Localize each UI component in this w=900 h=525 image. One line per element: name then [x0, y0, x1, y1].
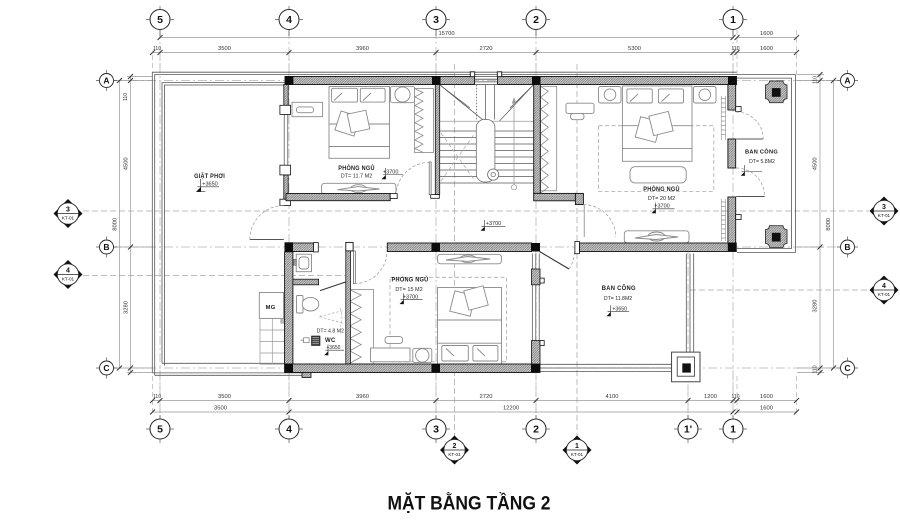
svg-text:1: 1: [730, 424, 736, 436]
svg-text:5: 5: [157, 424, 163, 436]
svg-text:DT= 20 M2: DT= 20 M2: [648, 196, 675, 202]
svg-text:4100: 4100: [606, 394, 619, 400]
svg-text:C: C: [103, 363, 109, 373]
svg-text:3: 3: [433, 424, 439, 436]
svg-text:2: 2: [453, 443, 457, 450]
svg-text:KT-01: KT-01: [878, 292, 891, 297]
svg-text:4: 4: [882, 283, 886, 290]
svg-text:4: 4: [286, 14, 292, 26]
svg-text:1600: 1600: [760, 394, 773, 400]
svg-text:PHÒNG NGỦ: PHÒNG NGỦ: [338, 163, 375, 172]
svg-text:BAN CÔNG: BAN CÔNG: [602, 284, 636, 292]
svg-text:110: 110: [732, 46, 740, 52]
svg-text:3: 3: [66, 207, 70, 214]
svg-text:DT= 4.8 M2: DT= 4.8 M2: [317, 329, 344, 335]
svg-text:2: 2: [533, 14, 539, 26]
svg-text:MẶT BẰNG TẦNG 2: MẶT BẰNG TẦNG 2: [388, 491, 551, 515]
svg-text:3500: 3500: [214, 406, 227, 412]
svg-text:DT= 11.7 M2: DT= 11.7 M2: [341, 174, 373, 180]
svg-text:110: 110: [153, 46, 161, 52]
svg-text:15700: 15700: [438, 31, 454, 37]
svg-text:B: B: [103, 242, 109, 252]
svg-text:110: 110: [813, 365, 819, 373]
svg-text:4: 4: [286, 424, 292, 436]
svg-text:3960: 3960: [356, 394, 369, 400]
svg-text:1200: 1200: [704, 394, 717, 400]
svg-text:DT= 11.8M2: DT= 11.8M2: [604, 296, 632, 302]
svg-text:8000: 8000: [826, 218, 832, 231]
svg-text:4: 4: [66, 268, 70, 275]
svg-text:1: 1: [730, 14, 736, 26]
svg-text:2720: 2720: [480, 46, 493, 52]
svg-text:KT-01: KT-01: [62, 216, 75, 221]
svg-text:8000: 8000: [113, 218, 119, 231]
svg-text:1: 1: [575, 443, 579, 450]
svg-text:DT= 15 M2: DT= 15 M2: [395, 287, 422, 293]
svg-text:+3700: +3700: [486, 221, 501, 227]
svg-text:DT= 5.8M2: DT= 5.8M2: [749, 159, 775, 165]
svg-text:1600: 1600: [760, 31, 773, 37]
svg-text:B: B: [844, 242, 850, 252]
svg-text:2: 2: [533, 424, 539, 436]
svg-text:110: 110: [732, 394, 740, 400]
svg-text:110: 110: [153, 394, 161, 400]
svg-text:12200: 12200: [503, 406, 519, 412]
svg-text:1600: 1600: [760, 406, 773, 412]
svg-text:A: A: [103, 76, 109, 86]
svg-text:4500: 4500: [124, 157, 130, 170]
svg-text:A: A: [844, 76, 850, 86]
svg-text:KT-01: KT-01: [571, 452, 584, 457]
svg-text:110: 110: [123, 93, 129, 101]
svg-text:PHÒNG NGỦ: PHÒNG NGỦ: [392, 274, 429, 283]
svg-text:3280: 3280: [124, 301, 130, 314]
svg-text:2720: 2720: [480, 394, 493, 400]
svg-text:1': 1': [684, 424, 692, 436]
svg-text:KT-01: KT-01: [878, 213, 891, 218]
svg-text:4500: 4500: [813, 157, 819, 170]
svg-text:3: 3: [882, 204, 886, 211]
svg-text:3960: 3960: [356, 46, 369, 52]
svg-text:MG: MG: [266, 305, 276, 311]
svg-text:BAN CÔNG: BAN CÔNG: [745, 148, 778, 156]
svg-text:KT-01: KT-01: [448, 452, 461, 457]
svg-text:WC: WC: [325, 338, 336, 344]
svg-text:3500: 3500: [218, 394, 231, 400]
svg-text:5300: 5300: [628, 46, 641, 52]
svg-text:PHÒNG NGỦ: PHÒNG NGỦ: [643, 184, 680, 193]
svg-text:3: 3: [433, 14, 439, 26]
svg-text:5: 5: [157, 14, 163, 26]
svg-text:110: 110: [813, 76, 819, 84]
svg-text:KT-01: KT-01: [62, 277, 75, 282]
svg-text:3500: 3500: [218, 46, 231, 52]
svg-text:3280: 3280: [813, 300, 819, 313]
svg-text:C: C: [844, 363, 850, 373]
svg-text:GIẶT PHƠI: GIẶT PHƠI: [194, 171, 225, 180]
svg-text:1600: 1600: [760, 46, 773, 52]
